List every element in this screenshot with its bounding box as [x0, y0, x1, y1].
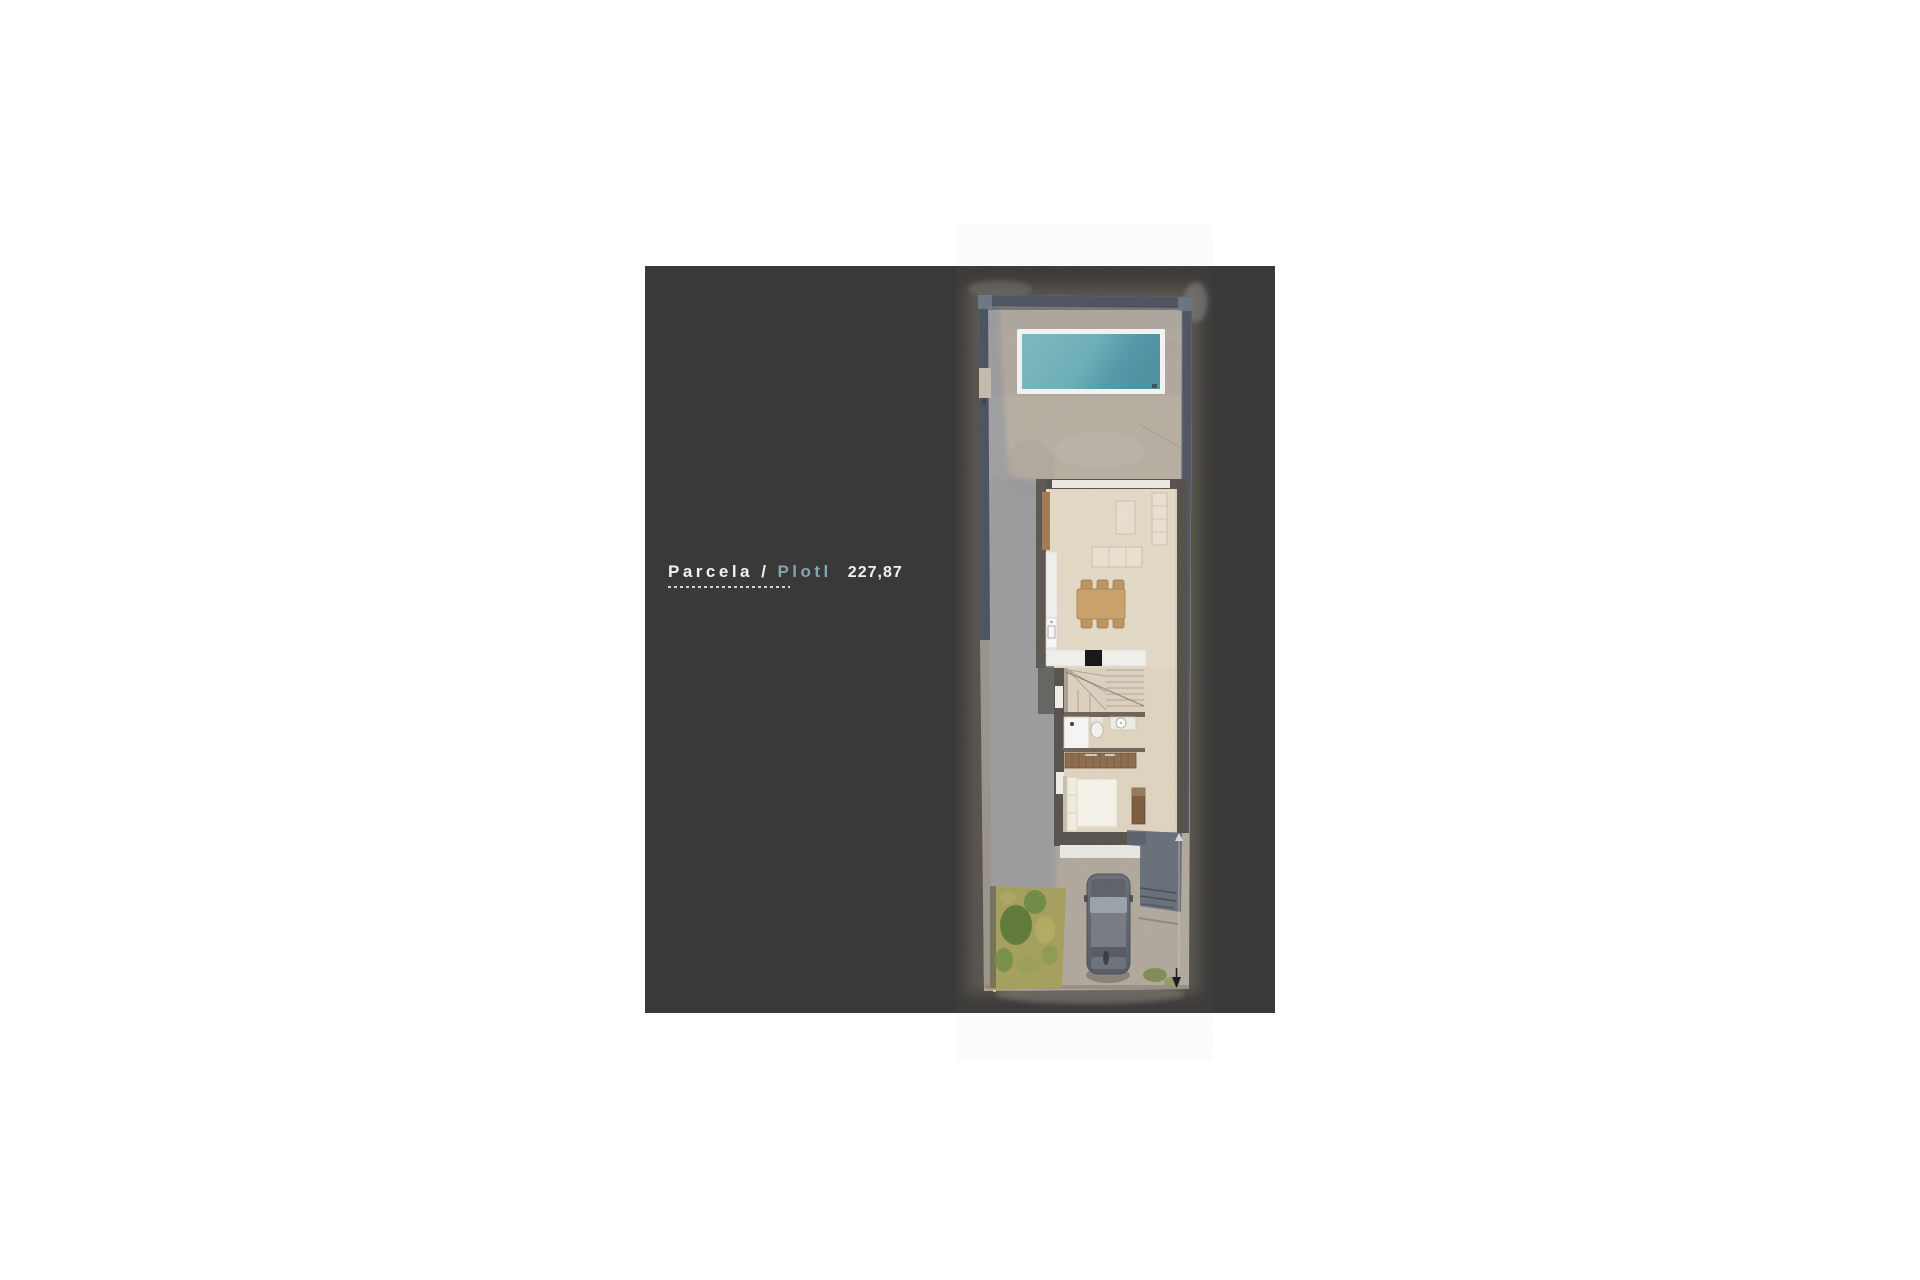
plot-area-value: 227,87: [848, 565, 903, 581]
page: Parcela / Plotl 227,87: [0, 0, 1920, 1280]
plot-label-en: Plotl: [777, 563, 831, 580]
plot-label-es: Parcela /: [668, 563, 769, 580]
dotted-underline: [668, 586, 790, 588]
site-plan-rendering: [955, 275, 1213, 1007]
plot-title: Parcela / Plotl 227,87: [668, 563, 903, 581]
slide-panel: Parcela / Plotl 227,87: [645, 266, 1275, 1013]
photo-grain: [978, 295, 1192, 991]
